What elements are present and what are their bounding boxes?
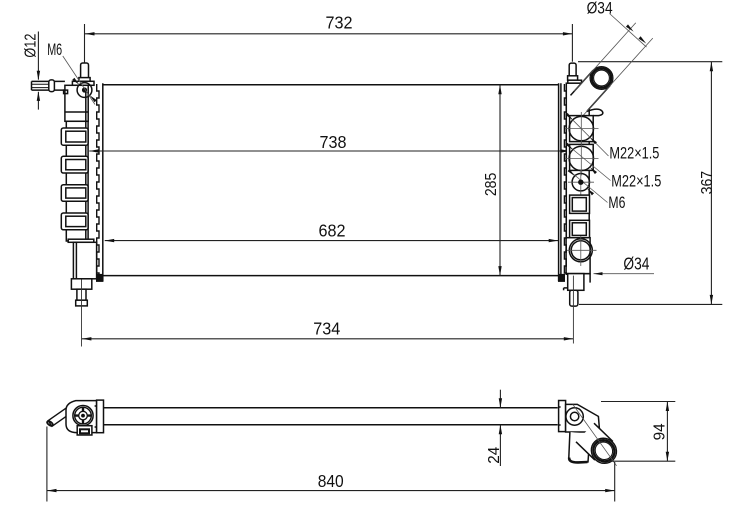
svg-text:367: 367 bbox=[699, 171, 716, 195]
svg-text:M6: M6 bbox=[47, 41, 62, 59]
svg-text:738: 738 bbox=[320, 132, 347, 152]
svg-text:734: 734 bbox=[313, 319, 340, 339]
svg-text:Ø34: Ø34 bbox=[623, 253, 649, 273]
svg-text:840: 840 bbox=[318, 471, 344, 491]
svg-text:732: 732 bbox=[326, 13, 353, 33]
svg-text:682: 682 bbox=[319, 221, 346, 241]
svg-text:Ø34: Ø34 bbox=[587, 0, 613, 17]
svg-text:94: 94 bbox=[652, 423, 669, 440]
svg-text:M6: M6 bbox=[608, 194, 625, 212]
svg-text:Ø12: Ø12 bbox=[23, 34, 40, 58]
svg-text:M22×1.5: M22×1.5 bbox=[611, 172, 661, 191]
svg-text:24: 24 bbox=[486, 446, 503, 463]
svg-text:M22×1.5: M22×1.5 bbox=[609, 144, 659, 163]
svg-text:285: 285 bbox=[483, 173, 500, 197]
